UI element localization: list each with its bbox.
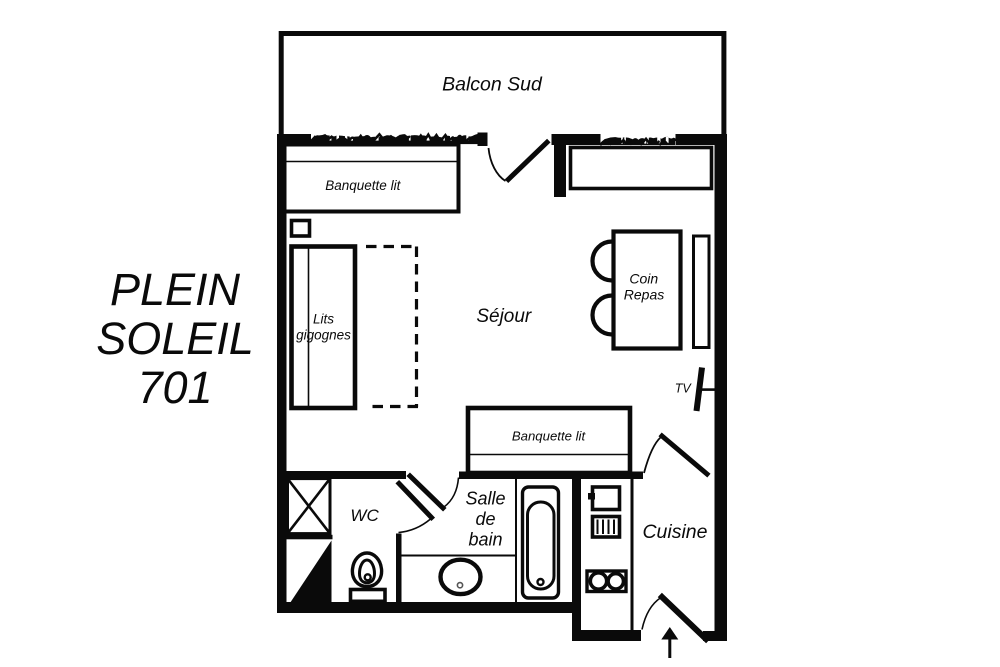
svg-text:Repas: Repas <box>624 287 664 303</box>
svg-text:SOLEIL: SOLEIL <box>96 313 254 364</box>
svg-text:Banquette lit: Banquette lit <box>325 178 401 193</box>
svg-text:gigognes: gigognes <box>296 328 351 343</box>
svg-text:de: de <box>475 509 495 529</box>
svg-text:Séjour: Séjour <box>476 306 532 327</box>
svg-text:Salle: Salle <box>465 489 505 509</box>
svg-text:TV: TV <box>675 382 693 396</box>
svg-text:701: 701 <box>137 362 212 413</box>
svg-text:Lits: Lits <box>313 312 334 327</box>
svg-text:Banquette lit: Banquette lit <box>512 429 587 444</box>
svg-text:Balcon Sud: Balcon Sud <box>442 74 543 96</box>
svg-text:WC: WC <box>350 506 379 525</box>
svg-text:bain: bain <box>468 530 502 550</box>
svg-text:Cuisine: Cuisine <box>642 521 707 543</box>
svg-text:PLEIN: PLEIN <box>110 264 241 315</box>
svg-text:Coin: Coin <box>629 271 658 287</box>
